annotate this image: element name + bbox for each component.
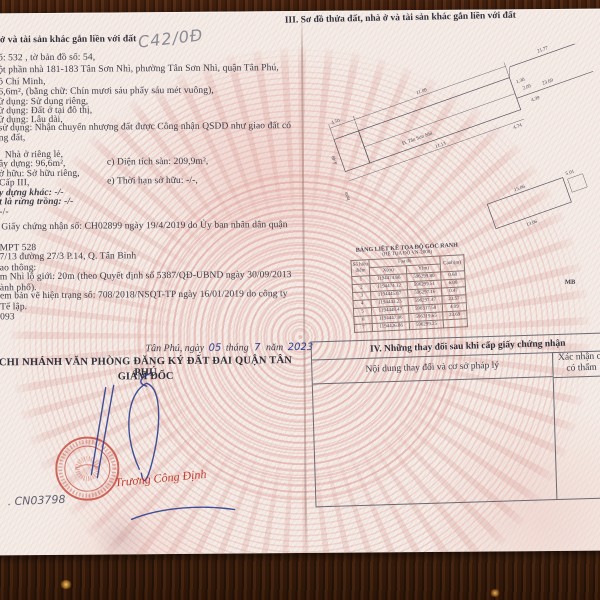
right-header-line1: Xác nhận củ [558, 352, 600, 363]
svg-text:13.06: 13.06 [526, 220, 539, 229]
house-tenure: e) Thời hạn sở hữu: -/-, [107, 177, 198, 187]
land-line: ng đất, [0, 134, 25, 144]
month-label: tháng [226, 342, 249, 353]
svg-text:5.01: 5.01 [565, 169, 575, 177]
signature-strokes [91, 373, 235, 520]
note-line: 093 [0, 313, 15, 323]
col-point-header: Số hiệu điểm [351, 260, 370, 277]
handwritten-year: 2023 [288, 342, 314, 353]
handwritten-day: 05 [209, 343, 222, 354]
house-floor-area: c) Diện tích sàn: 209,9m², [107, 158, 209, 168]
official-stamp-icon [56, 437, 118, 499]
svg-text:4.49: 4.49 [331, 154, 339, 164]
parcel-outline [329, 44, 595, 270]
section4-changes-table: IV. Những thay đổi sau khi cấp giấy chứn… [310, 332, 600, 508]
note-line: 7/13 đường 27/3 P.14, Q. Tân Bình [0, 252, 136, 263]
svg-text:2.05: 2.05 [522, 84, 532, 92]
house-line: t là rừng trồng: -/- [0, 198, 73, 208]
svg-text:4.50: 4.50 [331, 118, 341, 126]
svg-text:11.13: 11.13 [435, 141, 448, 150]
svg-text:1.30: 1.30 [516, 78, 526, 86]
coordinate-table: BẢNG LIỆT KÊ TỌA ĐỘ GÓC RANH (HỆ TỌA ĐỘ … [350, 242, 468, 333]
svg-text:hẻm: hẻm [344, 191, 352, 201]
svg-text:Đ. Tân Sơn Nhì: Đ. Tân Sơn Nhì [402, 131, 434, 146]
svg-text:11.09: 11.09 [416, 88, 429, 97]
svg-text:4.74: 4.74 [513, 123, 523, 131]
handwritten-reference: . CN03798 [7, 493, 65, 508]
handwritten-month: 7 [254, 342, 260, 353]
signer-name-stamp: Trương Công Định [114, 467, 207, 490]
stamp-and-signature: Trương Công Định [51, 368, 272, 535]
right-header-line2: có thẩm [558, 363, 597, 374]
date-prefix: Tân Phú, ngày [145, 343, 204, 354]
year-label: năm [266, 342, 283, 353]
col-edge-header: Cạnh(m) [440, 255, 465, 272]
section4-right-column-header: Xác nhận củ có thẩm [553, 350, 600, 378]
mb-label: MB [565, 279, 576, 286]
certificate-sheet: ở và tài sản khác gắn liền với đất C42/0… [0, 0, 600, 600]
svg-text:4.39: 4.39 [531, 96, 541, 104]
svg-text:15.06: 15.06 [514, 185, 527, 194]
section2-title-fragment: ở và tài sản khác gắn liền với đất [0, 35, 136, 46]
house-line: -/- [0, 208, 9, 218]
photo-of-land-certificate: ở và tài sản khác gắn liền với đất C42/0… [0, 0, 600, 600]
land-line: ố: 532 , tờ bản đồ số: 54, [0, 54, 95, 64]
